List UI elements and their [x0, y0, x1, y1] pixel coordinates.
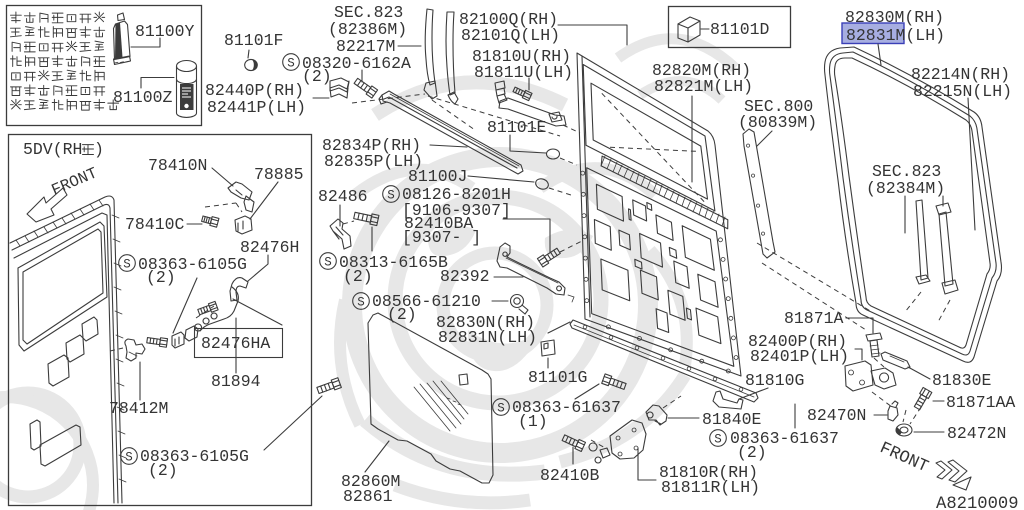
- svg-text:82470N: 82470N: [807, 406, 866, 425]
- svg-text:78410N: 78410N: [148, 156, 207, 175]
- svg-text:(2): (2): [146, 268, 176, 287]
- svg-text:S: S: [357, 296, 365, 310]
- svg-text:(2): (2): [148, 461, 178, 480]
- svg-text:82830M(RH): 82830M(RH): [845, 8, 944, 27]
- svg-text:81830E: 81830E: [932, 371, 992, 390]
- svg-text:81871A: 81871A: [784, 309, 844, 328]
- svg-text:(1): (1): [518, 412, 548, 431]
- svg-text:82486: 82486: [318, 187, 368, 206]
- svg-text:(2): (2): [343, 267, 373, 286]
- svg-text:81894: 81894: [211, 372, 261, 391]
- svg-text:[9307- ]: [9307- ]: [402, 228, 481, 247]
- svg-text:82821M(LH): 82821M(LH): [654, 77, 753, 96]
- svg-text:82472N: 82472N: [947, 424, 1006, 443]
- svg-text:81100Z: 81100Z: [113, 88, 173, 107]
- svg-text:81811U(LH): 81811U(LH): [474, 63, 573, 82]
- svg-text:81101G: 81101G: [528, 368, 587, 387]
- svg-text:81100J: 81100J: [408, 167, 467, 186]
- svg-text:81811R(LH): 81811R(LH): [661, 478, 760, 497]
- svg-text:): ): [94, 140, 104, 159]
- svg-text:82831M(LH): 82831M(LH): [846, 26, 945, 45]
- svg-text:(2): (2): [387, 305, 417, 324]
- svg-text:78412M: 78412M: [109, 399, 168, 418]
- svg-text:(2): (2): [737, 443, 767, 462]
- svg-text:78885: 78885: [254, 165, 304, 184]
- svg-text:S: S: [125, 451, 133, 465]
- svg-text:81100Y: 81100Y: [135, 22, 195, 41]
- svg-text:82401P(LH): 82401P(LH): [750, 347, 849, 366]
- svg-text:S: S: [714, 433, 722, 447]
- svg-text:82217M: 82217M: [336, 37, 395, 56]
- svg-text:82441P(LH): 82441P(LH): [207, 98, 306, 117]
- svg-text:82101Q(LH): 82101Q(LH): [461, 26, 560, 45]
- svg-text:81101F: 81101F: [224, 31, 283, 50]
- svg-text:81840E: 81840E: [702, 410, 762, 429]
- svg-text:A8210009: A8210009: [936, 495, 1019, 510]
- svg-text:S: S: [324, 256, 332, 270]
- svg-text:82410B: 82410B: [540, 466, 600, 485]
- svg-text:5DV(RH: 5DV(RH: [23, 140, 82, 159]
- svg-text:81810G: 81810G: [745, 371, 804, 390]
- svg-text:82215N(LH): 82215N(LH): [913, 82, 1012, 101]
- svg-text:82861: 82861: [343, 487, 393, 506]
- svg-text:82831N(LH): 82831N(LH): [438, 328, 537, 347]
- svg-text:78410C: 78410C: [125, 215, 185, 234]
- svg-text:(82384M): (82384M): [866, 179, 945, 198]
- svg-text:S: S: [497, 402, 505, 416]
- svg-text:S: S: [287, 57, 295, 71]
- svg-text:82476H: 82476H: [240, 238, 299, 257]
- svg-text:(2): (2): [302, 67, 332, 86]
- svg-text:S: S: [387, 189, 395, 203]
- svg-text:81101E: 81101E: [487, 118, 547, 137]
- svg-text:82392: 82392: [440, 267, 490, 286]
- svg-text:81871AA: 81871AA: [946, 393, 1015, 412]
- svg-text:S: S: [123, 258, 131, 272]
- svg-text:81101D: 81101D: [710, 20, 770, 39]
